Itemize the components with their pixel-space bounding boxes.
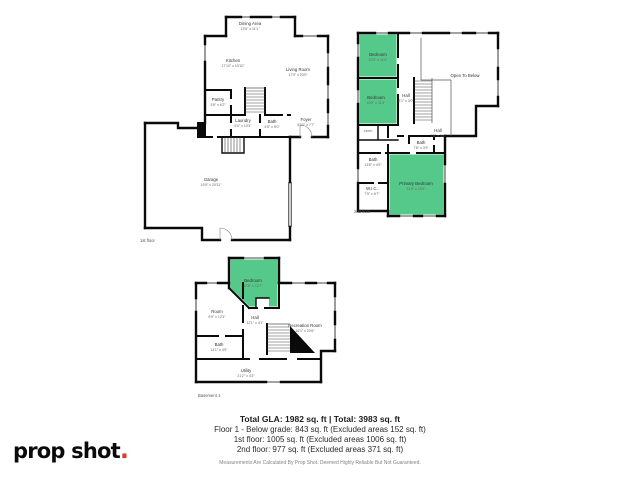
first-floor-plan: Dining Area 13'6" x 11'1" Kitchen 17'10"… (138, 10, 334, 250)
room-dims: 9'9" x 12'1" (208, 315, 226, 319)
room-label: Hall (434, 128, 441, 133)
room-label: Laundry (235, 118, 251, 123)
room-label: Bath (369, 157, 378, 162)
room-dims: 14'1" x 4'9" (210, 348, 228, 352)
room-label: Pantry (212, 97, 225, 102)
room-dims: 7'8" x 3'9" (413, 146, 429, 150)
room-label: Dining Area (239, 21, 262, 26)
room-label: Linen (364, 129, 373, 133)
total-gla-line: Total GLA: 1982 sq. ft | Total: 3983 sq.… (0, 414, 640, 425)
room-dims: 4'6" x 5'0" (264, 125, 280, 129)
room-label: Utility (241, 368, 252, 373)
room-label: Bath (268, 119, 277, 124)
room-label: Bedroom (244, 278, 262, 283)
room-dims: 10'0" x 11'3" (367, 101, 387, 105)
room-label: Bedroom (367, 95, 385, 100)
room-label: Bedroom (369, 52, 387, 57)
second-floor-stairs (414, 38, 451, 136)
floorplan-page: Dining Area 13'6" x 11'1" Kitchen 17'10"… (0, 0, 640, 480)
room-dims: 13'6" x 11'1" (241, 27, 261, 31)
room-label: Living Room (286, 67, 310, 72)
first-floor-walls (145, 17, 328, 240)
room-dims: 17'9" x 20'0" (288, 73, 308, 77)
room-dims: 7'5" x 6'7" (364, 192, 380, 196)
floor-label: 2nd floor (354, 209, 371, 214)
area-summary: Total GLA: 1982 sq. ft | Total: 3983 sq.… (0, 414, 640, 466)
room-dims: 12'1" x 4'1" (246, 321, 264, 325)
room-dims: 6'10" x 7'7" (297, 123, 315, 127)
first-floor-windows (205, 17, 328, 227)
room-dims: 16'1" x 20'6" (295, 329, 315, 333)
room-label: Hall (402, 93, 409, 98)
room-label: Bath (215, 342, 224, 347)
room-label: Primary Bedroom (399, 181, 433, 186)
room-dims: 21'2" x 4'3" (237, 374, 255, 378)
second-floor-area-line: 2nd floor: 977 sq. ft (Excluded areas 37… (0, 445, 640, 455)
room-dims: 10'2" x 11'4" (369, 58, 389, 62)
floor-label: 1st floor (140, 238, 156, 243)
room-dims: 12'8" x 12'7" (243, 284, 263, 288)
floor-label: Basement 1 (198, 393, 221, 398)
room-label: Foyer (301, 117, 313, 122)
room-dims: 17'10" x 10'10" (221, 64, 245, 68)
second-floor-plan: Bedroom 10'2" x 11'4" Bedroom 10'0" x 11… (353, 27, 503, 221)
basement-floor-plan: Bedroom 12'8" x 12'7" Room 9'9" x 12'1" … (186, 250, 341, 402)
room-label: Open To Below (450, 73, 480, 78)
room-label: W.I.C. (366, 186, 378, 191)
floor1-area-line: Floor 1 - Below grade: 843 sq. ft (Exclu… (0, 425, 640, 435)
room-dims: 8'1" x 3'0" (398, 99, 414, 103)
disclaimer-text: Measurements Are Calculated By Prop Shot… (0, 460, 640, 466)
room-dims: 3'8" x 6'2" (210, 103, 226, 107)
room-dims: 19'5" x 20'11" (201, 183, 223, 187)
room-dims: 7'8" x 3'4" (430, 134, 446, 138)
first-floor-area-line: 1st floor: 1005 sq. ft (Excluded areas 1… (0, 435, 640, 445)
room-label: Hall (251, 315, 258, 320)
room-dims: 6'0" x 10'4" (234, 124, 252, 128)
room-label: Room (211, 309, 223, 314)
room-label: Recreation Room (288, 323, 322, 328)
room-dims: 13'8" x 4'9" (364, 163, 382, 167)
room-label: Garage (204, 177, 219, 182)
room-dims: 14'9" x 15'9" (406, 187, 426, 191)
room-label: Kitchen (226, 58, 241, 63)
room-label: Bath (417, 140, 426, 145)
